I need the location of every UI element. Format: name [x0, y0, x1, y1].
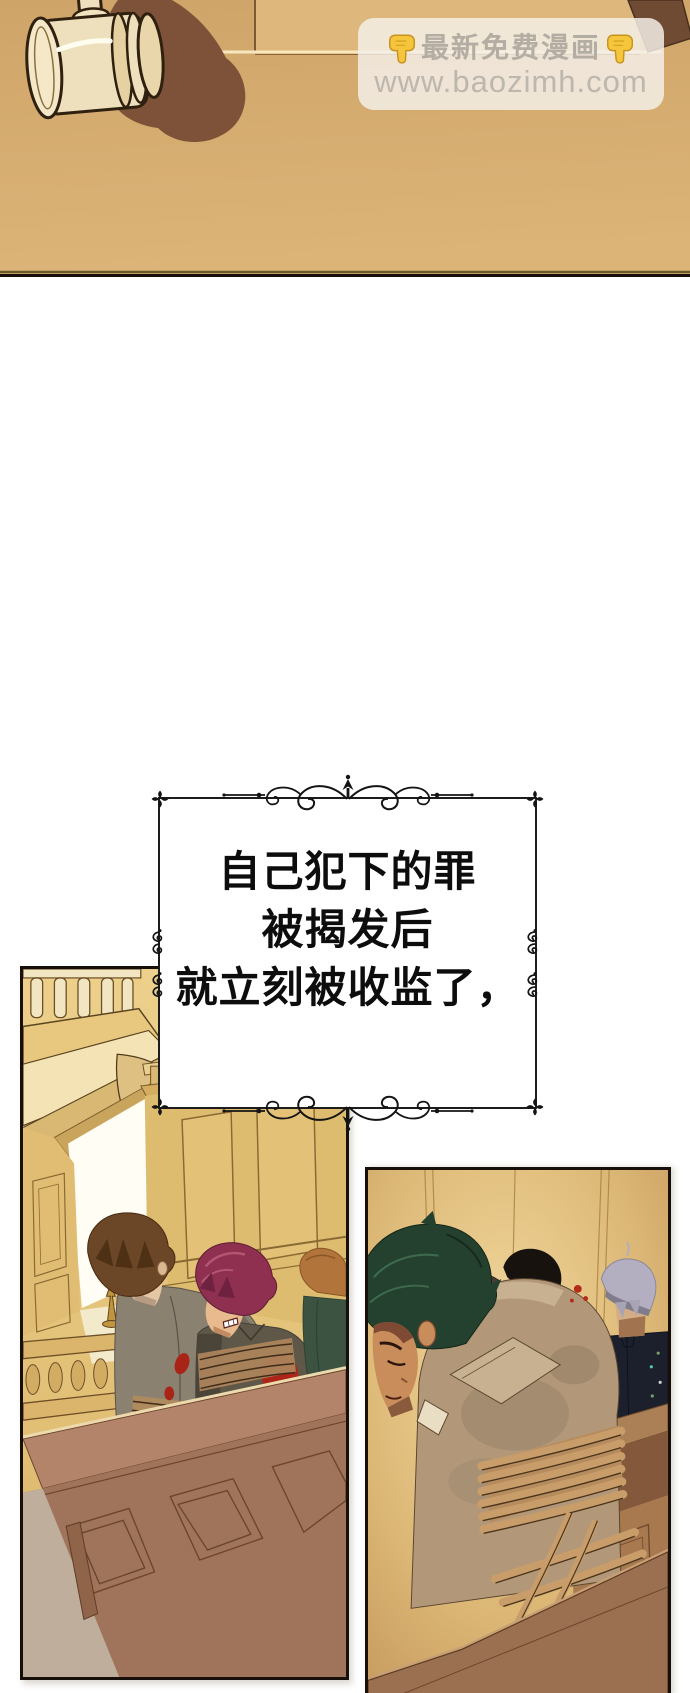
frame-scroll-ornament-icon [523, 971, 547, 1001]
frame-scroll-ornament-icon [148, 928, 172, 958]
frame-flourish-top-icon [218, 773, 478, 819]
watermark-badge: 最新免费漫画 www.baozimh.com [358, 18, 664, 110]
narration-line: 自己犯下的罪 [218, 843, 476, 901]
narration-line: 被揭发后 [261, 901, 433, 959]
frame-flourish-bottom-icon [218, 1087, 478, 1133]
frame-corner-ornament-icon [151, 790, 169, 808]
panel-prisoners-right [365, 1167, 671, 1693]
frame-corner-ornament-icon [526, 1098, 544, 1116]
watermark-url: www.baozimh.com [374, 66, 647, 97]
watermark-title-row: 最新免费漫画 [389, 32, 633, 64]
frame-corner-ornament-icon [151, 1098, 169, 1116]
watermark-title: 最新免费漫画 [421, 34, 601, 62]
frame-scroll-ornament-icon [148, 971, 172, 1001]
pointing-down-hand-icon [607, 32, 633, 64]
courtroom-right-illustration [368, 1170, 668, 1693]
frame-scroll-ornament-icon [523, 928, 547, 958]
frame-corner-ornament-icon [526, 790, 544, 808]
pointing-down-hand-icon [389, 32, 415, 64]
panel-gavel-scene: 最新免费漫画 www.baozimh.com [0, 0, 690, 277]
narration-line: 就立刻被收监了， [175, 959, 519, 1017]
narration-box: 自己犯下的罪 被揭发后 就立刻被收监了， [158, 797, 537, 1109]
gavel [19, 0, 167, 119]
comic-page: 最新免费漫画 www.baozimh.com [0, 0, 690, 1693]
